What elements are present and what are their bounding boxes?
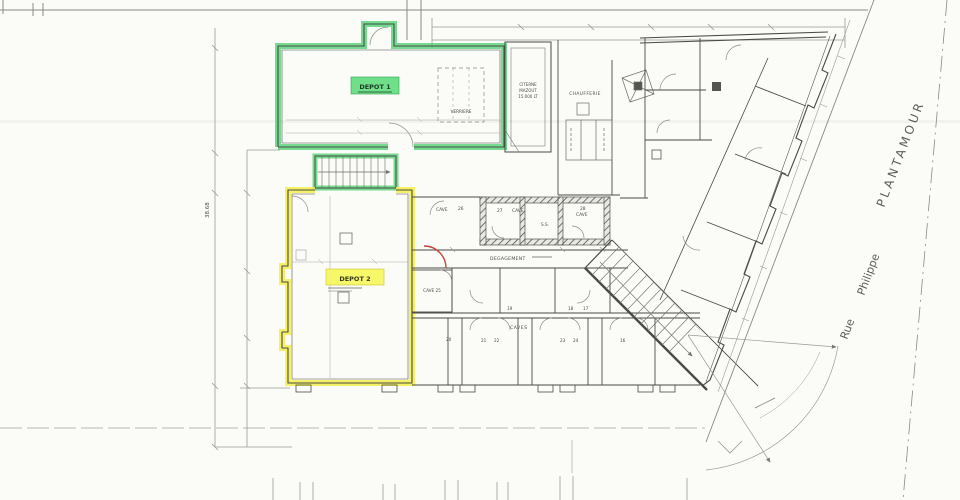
scan-artifact-band bbox=[0, 120, 960, 123]
cave26-number: 26 bbox=[458, 206, 464, 212]
cave27-number: 27 bbox=[497, 208, 503, 214]
ss-label: S.S. bbox=[541, 222, 549, 227]
caves-label: CAVES bbox=[510, 325, 528, 331]
cave26-label: CAVE bbox=[436, 207, 448, 213]
cave28-number: 28 bbox=[580, 206, 586, 212]
depot1-label: DEPOT 1 bbox=[351, 77, 399, 94]
citerne-label-3: 15.000 LT bbox=[518, 94, 538, 99]
duct-shaft bbox=[712, 82, 721, 91]
depot1-label-text: DEPOT 1 bbox=[359, 83, 391, 91]
citerne-label-2: MAZOUT bbox=[519, 88, 537, 93]
chaufferie-label: CHAUFFERIE bbox=[569, 91, 601, 97]
cave25-label: CAVE 25 bbox=[423, 288, 441, 293]
dimension-left-total: 38.68 bbox=[205, 202, 211, 218]
degagement-label: DEGAGEMENT bbox=[490, 256, 526, 262]
citerne-label-1: CITERNE bbox=[519, 82, 537, 87]
cave16-number: 16 bbox=[620, 338, 626, 343]
floor-plan-drawing: 38.68 bbox=[0, 0, 960, 500]
cave23-number: 23 bbox=[560, 338, 566, 343]
cave19-number: 19 bbox=[507, 306, 513, 311]
cave21-number: 21 bbox=[481, 338, 487, 343]
cave27-label: CAVE bbox=[512, 208, 524, 214]
cave18-number: 18 bbox=[568, 306, 574, 311]
cave28-label: CAVE bbox=[576, 212, 588, 218]
cave17-number: 17 bbox=[583, 306, 589, 311]
depot2-label-text: DEPOT 2 bbox=[339, 275, 370, 283]
cave24-number: 24 bbox=[573, 338, 579, 343]
verriere-label: VERRIERE bbox=[451, 109, 472, 114]
cave22-number: 22 bbox=[494, 338, 500, 343]
floor-plan-sheet: 38.68 bbox=[0, 0, 960, 500]
cave20-number: 20 bbox=[446, 337, 452, 342]
